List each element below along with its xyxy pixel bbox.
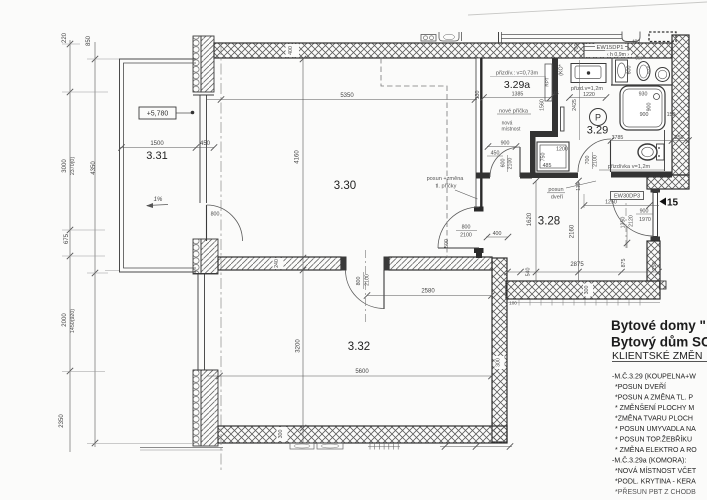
svg-text:-M.Č.3.29 (KOUPELNA+W: -M.Č.3.29 (KOUPELNA+W [612, 372, 696, 381]
svg-text:EW15DP1: EW15DP1 [596, 45, 623, 51]
svg-text:*PODL. KRYTINA - KERA: *PODL. KRYTINA - KERA [615, 479, 696, 486]
svg-text:300: 300 [496, 358, 502, 367]
svg-text:800: 800 [211, 212, 220, 218]
svg-text:-M.Č.3.29a (KOMORA):: -M.Č.3.29a (KOMORA): [612, 456, 686, 465]
svg-text:1250: 1250 [605, 200, 617, 206]
svg-text:2370(0): 2370(0) [70, 157, 76, 175]
svg-text:4160: 4160 [295, 150, 301, 164]
svg-text:*NOVÁ MÍSTNOST VČET: *NOVÁ MÍSTNOST VČET [615, 466, 697, 475]
svg-text:Bytové domy ": Bytové domy " [611, 318, 706, 333]
svg-text:850: 850 [86, 35, 92, 46]
svg-text:2100: 2100 [593, 155, 599, 167]
svg-text:1970: 1970 [639, 217, 651, 223]
svg-text:300: 300 [278, 430, 284, 439]
svg-text:místnost: místnost [502, 127, 522, 133]
svg-text:523: 523 [646, 66, 651, 74]
svg-text:600: 600 [627, 66, 633, 75]
svg-text:* POSUN TOP.ŽEBŘÍKU: * POSUN TOP.ŽEBŘÍKU [615, 435, 692, 444]
svg-text:2100: 2100 [508, 158, 514, 170]
svg-text:P: P [595, 113, 601, 123]
svg-text:450: 450 [491, 151, 500, 157]
svg-text:800: 800 [462, 225, 471, 231]
svg-text:3.31: 3.31 [146, 150, 167, 162]
svg-text:250: 250 [652, 262, 658, 271]
svg-text:115: 115 [576, 182, 582, 190]
svg-text:150: 150 [667, 112, 676, 118]
svg-text:2160: 2160 [570, 224, 576, 238]
svg-text:1%: 1% [154, 197, 163, 203]
svg-text:3.30: 3.30 [334, 180, 356, 192]
svg-text:RPT: RPT [545, 77, 550, 86]
svg-text:1385: 1385 [512, 92, 524, 98]
svg-text:* ZMĚNA ELEKTRO A RO: * ZMĚNA ELEKTRO A RO [615, 445, 697, 454]
svg-text:‹ h 0,9m ›: ‹ h 0,9m › [607, 52, 629, 58]
svg-text:tl. příčky: tl. příčky [436, 184, 457, 190]
svg-text:2120: 2120 [629, 215, 635, 227]
svg-text:5350: 5350 [340, 93, 354, 99]
svg-text:*POSUN A ZMĚNA TL. P: *POSUN A ZMĚNA TL. P [615, 393, 693, 402]
svg-text:*PŘESUN PBT Z CHODB: *PŘESUN PBT Z CHODB [615, 487, 696, 496]
svg-text:EW30DP3: EW30DP3 [614, 194, 640, 200]
svg-text:250: 250 [675, 135, 684, 141]
svg-text:3.28: 3.28 [538, 216, 560, 228]
svg-text:700: 700 [585, 156, 591, 165]
svg-text:115: 115 [551, 91, 559, 96]
svg-text:220: 220 [62, 32, 68, 43]
svg-text:1350: 1350 [621, 217, 627, 229]
svg-text:100: 100 [509, 301, 517, 306]
svg-text:3.32: 3.32 [348, 341, 370, 353]
svg-text:450: 450 [200, 141, 211, 147]
svg-text:2100: 2100 [460, 233, 472, 239]
svg-text:dveří: dveří [551, 195, 564, 201]
svg-text:400: 400 [632, 39, 640, 45]
svg-text:5600: 5600 [355, 369, 369, 375]
svg-text:240: 240 [274, 259, 280, 268]
svg-text:700: 700 [574, 44, 580, 53]
svg-text:900: 900 [640, 209, 649, 215]
svg-text:*POSUN DVEŘÍ: *POSUN DVEŘÍ [615, 382, 666, 391]
svg-text:600: 600 [501, 159, 507, 168]
svg-text:900: 900 [647, 103, 653, 112]
svg-text:(KO*: (KO* [559, 64, 565, 75]
svg-text:500: 500 [444, 239, 450, 248]
svg-text:900: 900 [640, 112, 649, 118]
svg-text:130: 130 [475, 91, 481, 100]
svg-text:300: 300 [584, 286, 590, 295]
svg-text:2350: 2350 [59, 414, 65, 428]
svg-text:800: 800 [356, 277, 362, 286]
svg-text:1560: 1560 [540, 99, 546, 111]
svg-text:900: 900 [501, 141, 510, 147]
svg-text:nové příčka: nové příčka [499, 109, 529, 115]
svg-text:přizdívka v=1,2m: přizdívka v=1,2m [608, 164, 651, 170]
svg-text:3000: 3000 [62, 159, 68, 173]
svg-text:2000: 2000 [62, 313, 68, 327]
svg-text:750: 750 [541, 153, 547, 162]
svg-text:3.29a: 3.29a [504, 79, 530, 91]
svg-text:2425: 2425 [572, 99, 578, 111]
svg-text:posun +změna: posun +změna [427, 176, 465, 182]
svg-text:540: 540 [526, 268, 532, 277]
svg-text:15: 15 [667, 198, 679, 209]
svg-text:875: 875 [621, 259, 627, 268]
svg-text:*ZMĚNA TVARU PLOCH: *ZMĚNA TVARU PLOCH [615, 414, 693, 423]
svg-text:675: 675 [64, 233, 70, 244]
svg-text:1220: 1220 [583, 92, 595, 98]
svg-text:Bytový dům SO: Bytový dům SO [611, 335, 707, 350]
svg-text:1200: 1200 [556, 147, 568, 153]
svg-text:4350: 4350 [91, 161, 97, 175]
svg-text:2875: 2875 [570, 262, 584, 268]
svg-text:KLIENTSKÉ ZMĚN: KLIENTSKÉ ZMĚN [612, 349, 702, 362]
svg-text:3200: 3200 [296, 339, 302, 353]
svg-text:400: 400 [493, 231, 502, 237]
svg-text:3.29: 3.29 [587, 125, 608, 137]
svg-text:485: 485 [543, 163, 552, 169]
svg-text:* ZMĚNŠENÍ PLOCHY M: * ZMĚNŠENÍ PLOCHY M [615, 403, 694, 412]
svg-text:2100: 2100 [365, 274, 371, 286]
svg-text:* POSUN UMYVADLA NA: * POSUN UMYVADLA NA [615, 426, 696, 433]
svg-text:2580: 2580 [421, 289, 435, 295]
svg-text:přizdív.: v=0,73m: přizdív.: v=0,73m [496, 71, 539, 77]
svg-text:1620: 1620 [527, 212, 533, 226]
svg-text:560: 560 [635, 56, 643, 61]
svg-text:posun: posun [548, 187, 563, 193]
svg-text:400: 400 [288, 46, 294, 55]
svg-text:+5,780: +5,780 [147, 111, 169, 118]
svg-text:930: 930 [639, 92, 648, 98]
svg-text:1500: 1500 [150, 141, 164, 147]
svg-text:1450(920): 1450(920) [70, 309, 76, 333]
